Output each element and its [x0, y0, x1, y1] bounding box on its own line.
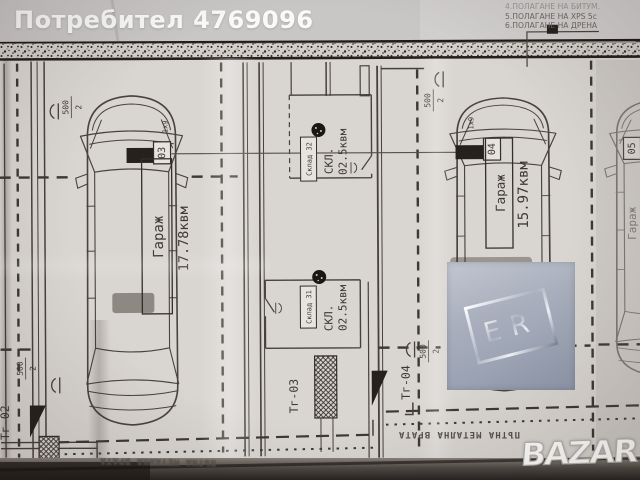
car-03-rear-window-shading	[112, 293, 154, 313]
note-line-4: 4.ПОЛАГАНЕ НА БИТУМ.	[505, 2, 640, 12]
storage-32-label: СКЛ.	[323, 148, 336, 175]
storage-31-label: СКЛ.	[322, 305, 335, 332]
storage-32-area: 02.5квм	[336, 128, 349, 175]
garage-03-name: Гараж	[151, 215, 167, 258]
floor-plan-drawing: 03 1х9 Гараж 17.78квм 04 1х9 Гараж 15.97…	[0, 0, 640, 480]
er-logo-text: ER	[481, 306, 543, 350]
column-symbol-32	[311, 123, 325, 137]
garage-04-name: Гараж	[493, 174, 508, 212]
er-logo: ER	[447, 262, 575, 390]
storage-31-tag: Склад 31	[305, 290, 313, 324]
storage-31-area: 02.5квм	[336, 284, 349, 331]
gate-tg03-label: Тг-03	[287, 379, 301, 414]
note-line-5: 5.ПОЛАГАНЕ НА XPS 5с	[505, 12, 640, 22]
garage-04-area: 15.97квм	[516, 161, 532, 229]
top-wall-hatch-band	[0, 42, 640, 60]
gate-tg04-label: Тг-04	[399, 365, 413, 400]
gate-caption-left: ПЪТНА МЕТАЛНА ВРАТА	[100, 455, 216, 467]
garage-03-tag: 03	[157, 147, 168, 159]
dim-500-value: 500	[16, 361, 25, 376]
er-badge-panel: ER	[447, 262, 575, 390]
dim-500-value: 500	[61, 100, 70, 115]
garage-03-size-note: 1х9	[161, 120, 169, 133]
roof-layers-notes: 4.ПОЛАГАНЕ НА БИТУМ. 5.ПОЛАГАНЕ НА XPS 5…	[505, 2, 640, 31]
photographed-floor-plan: 03 1х9 Гараж 17.78квм 04 1х9 Гараж 15.97…	[0, 0, 640, 480]
bazar-watermark: BAZAR	[520, 432, 638, 473]
garage-04-label-bar	[456, 145, 486, 159]
dim-axis-value: 2	[29, 366, 38, 371]
user-watermark: Потребител 4769096	[14, 6, 314, 34]
note-line-6: 6.ПОЛАГАНЕ НА ДРЕНА	[505, 21, 640, 31]
garage-04-tag: 04	[487, 143, 498, 155]
column-symbol-31	[312, 270, 326, 284]
gate-caption-right: ПЪТНА МЕТАЛНА ВРАТА	[398, 429, 520, 439]
garage-04-size-note: 1х9	[467, 117, 475, 130]
shaft-hatch-center	[315, 356, 337, 418]
dim-axis-value: 2	[74, 105, 83, 110]
storage-32-tag: Склад 32	[305, 142, 313, 176]
